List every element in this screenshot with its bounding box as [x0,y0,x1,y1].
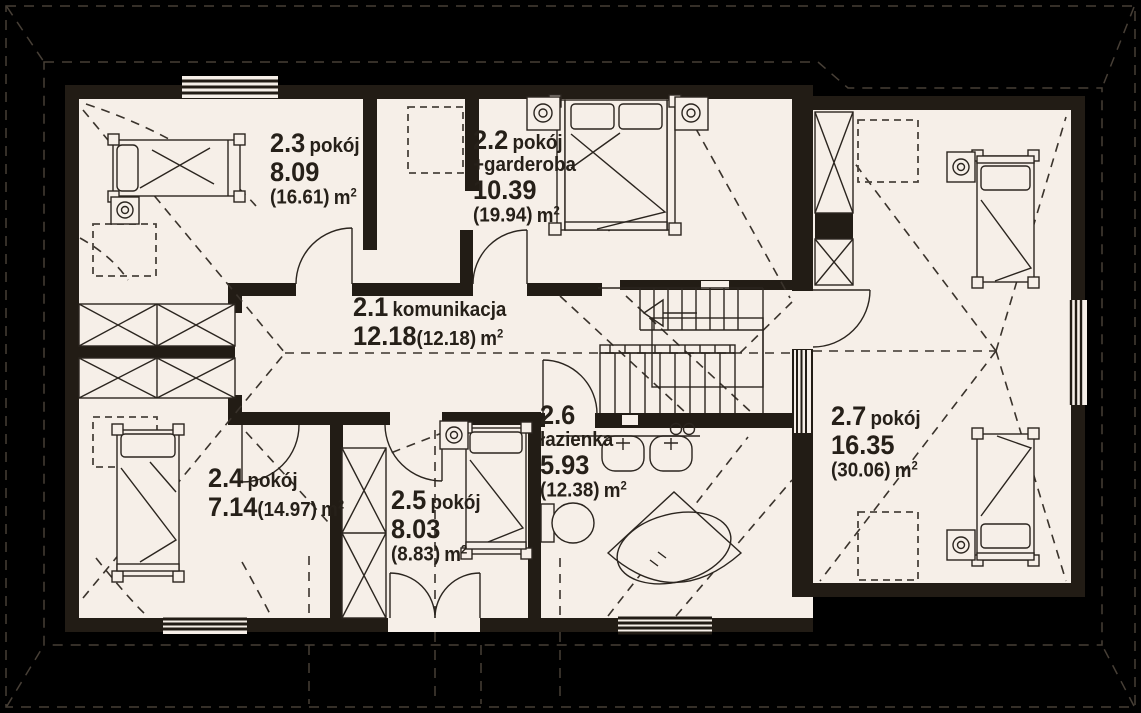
unit-superscript: 2 [497,326,503,340]
room-number: 2.5 [391,485,426,515]
room-area: 8.09 [270,158,360,187]
area-unit: m2 [480,328,503,350]
room-number: 2.1 [353,292,388,322]
room-area: 8.03 [391,515,481,544]
room-name-2: +garderoba [473,155,576,176]
room-number: 2.6 [540,401,627,430]
room-label-2-7: 2.7 pokój 16.35 (30.06) m2 [831,402,921,482]
window-bottom-left [163,614,247,634]
room-total: (19.94) [473,205,533,227]
room-total: (12.18) [417,328,477,350]
unit-superscript: 2 [461,542,467,556]
room-total: (16.61) [270,187,330,209]
room-number: 2.4 [208,463,243,493]
room-area: 5.93 [540,451,627,480]
nightstand-room22-right [675,97,708,130]
nightstand-room25 [440,421,468,449]
area-unit: m2 [537,205,560,227]
room-number: 2.7 [831,401,866,431]
room-number: 2.3 [270,128,305,158]
balcony-door-opening [388,618,480,632]
bed-room23 [108,134,245,202]
nightstand-room23 [111,197,139,224]
room-area: 10.39 [473,176,576,205]
room-total: (14.97) [257,499,317,521]
room-label-2-5: 2.5 pokój 8.03 (8.83) m2 [391,486,481,566]
room-area: 16.35 [831,431,921,460]
area-unit: m2 [444,544,467,566]
window-bottom-bath [618,614,712,634]
area-unit: m2 [321,499,344,521]
wardrobe-room27 [815,112,853,285]
unit-superscript: 2 [553,203,559,217]
room-label-2-2: 2.2 pokój +garderoba 10.39 (19.94) m2 [473,126,576,227]
room-total: (12.38) [540,480,600,502]
room-area: 7.14 [208,492,257,522]
window-top [182,76,278,98]
room-name: pokój [309,135,359,157]
floor-plan: 2.3 pokój 8.09 (16.61) m2 2.2 pokój +gar… [0,0,1141,713]
unit-superscript: 2 [350,185,356,199]
unit-superscript: 2 [620,478,626,492]
nightstand-room27-bottom [947,530,975,560]
room-area: 12.18 [353,321,417,351]
room-name: komunikacja [392,299,506,321]
nightstand-room27-top [947,152,975,182]
area-unit: m2 [334,187,357,209]
room-name: pokój [512,132,562,154]
room-number: 2.2 [473,125,508,155]
room-total: (30.06) [831,460,891,482]
room-name: łazienka [540,430,627,451]
bed-room27-bottom [972,428,1039,566]
room-label-2-6: 2.6 łazienka 5.93 (12.38) m2 [540,401,627,502]
unit-superscript: 2 [911,458,917,472]
wardrobe-left-top [79,304,235,346]
room-name: pokój [247,470,297,492]
room-label-2-3: 2.3 pokój 8.09 (16.61) m2 [270,129,360,209]
room-name: pokój [870,408,920,430]
bed-room27-top [972,150,1039,288]
room-name: pokój [430,492,480,514]
room-label-2-4: 2.4 pokój 7.14(14.97) m2 [208,464,344,521]
unit-superscript: 2 [338,497,344,511]
bed-room24 [112,424,184,582]
room-label-2-1: 2.1 komunikacja 12.18(12.18) m2 [353,293,506,350]
area-unit: m2 [895,460,918,482]
window-landing [794,350,811,433]
toilet-icon [541,503,594,543]
wardrobe-left-bottom [79,358,235,398]
area-unit: m2 [604,480,627,502]
plan-drawing [0,0,1141,713]
window-right-wing [1067,300,1087,405]
room-total: (8.83) [391,544,440,566]
wardrobe-room25 [342,448,386,618]
